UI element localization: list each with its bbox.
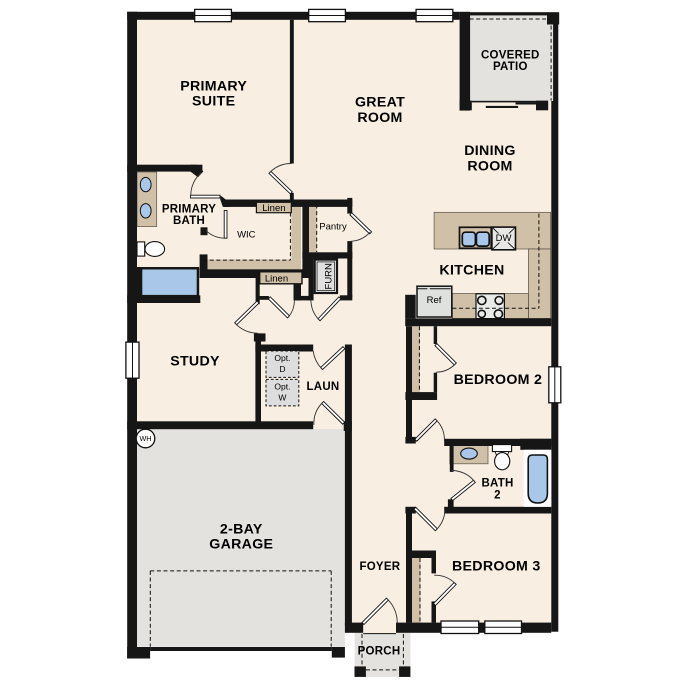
svg-text:DW: DW: [496, 233, 512, 244]
svg-text:FURN: FURN: [324, 263, 335, 290]
svg-text:2-BAY: 2-BAY: [220, 521, 263, 537]
svg-text:BEDROOM 3: BEDROOM 3: [452, 558, 541, 574]
svg-text:FOYER: FOYER: [359, 561, 400, 573]
svg-text:Linen: Linen: [262, 203, 285, 214]
svg-text:Opt.: Opt.: [274, 381, 290, 391]
svg-text:WIC: WIC: [237, 229, 256, 240]
svg-text:PATIO: PATIO: [493, 61, 528, 73]
svg-text:D: D: [279, 364, 285, 374]
svg-text:PORCH: PORCH: [358, 645, 401, 657]
svg-text:PRIMARY: PRIMARY: [162, 203, 216, 215]
svg-text:GARAGE: GARAGE: [209, 537, 273, 553]
svg-text:BATH: BATH: [481, 478, 513, 490]
svg-text:DINING: DINING: [464, 143, 515, 159]
svg-text:Linen: Linen: [265, 274, 288, 285]
svg-text:2: 2: [494, 490, 501, 502]
svg-text:KITCHEN: KITCHEN: [439, 263, 504, 279]
svg-text:BATH: BATH: [173, 215, 205, 227]
svg-text:COVERED: COVERED: [481, 50, 540, 62]
svg-text:W: W: [278, 392, 286, 402]
svg-text:LAUN: LAUN: [307, 381, 340, 393]
svg-text:WH: WH: [140, 434, 152, 443]
svg-text:ROOM: ROOM: [467, 158, 512, 174]
svg-text:ROOM: ROOM: [357, 110, 402, 126]
svg-text:SUITE: SUITE: [192, 94, 235, 110]
svg-text:STUDY: STUDY: [170, 354, 220, 370]
svg-text:Pantry: Pantry: [319, 222, 347, 233]
svg-text:BEDROOM 2: BEDROOM 2: [454, 372, 543, 388]
svg-text:Opt.: Opt.: [274, 353, 290, 363]
svg-text:GREAT: GREAT: [355, 95, 405, 111]
svg-text:Ref: Ref: [427, 295, 442, 306]
svg-text:PRIMARY: PRIMARY: [180, 78, 247, 94]
